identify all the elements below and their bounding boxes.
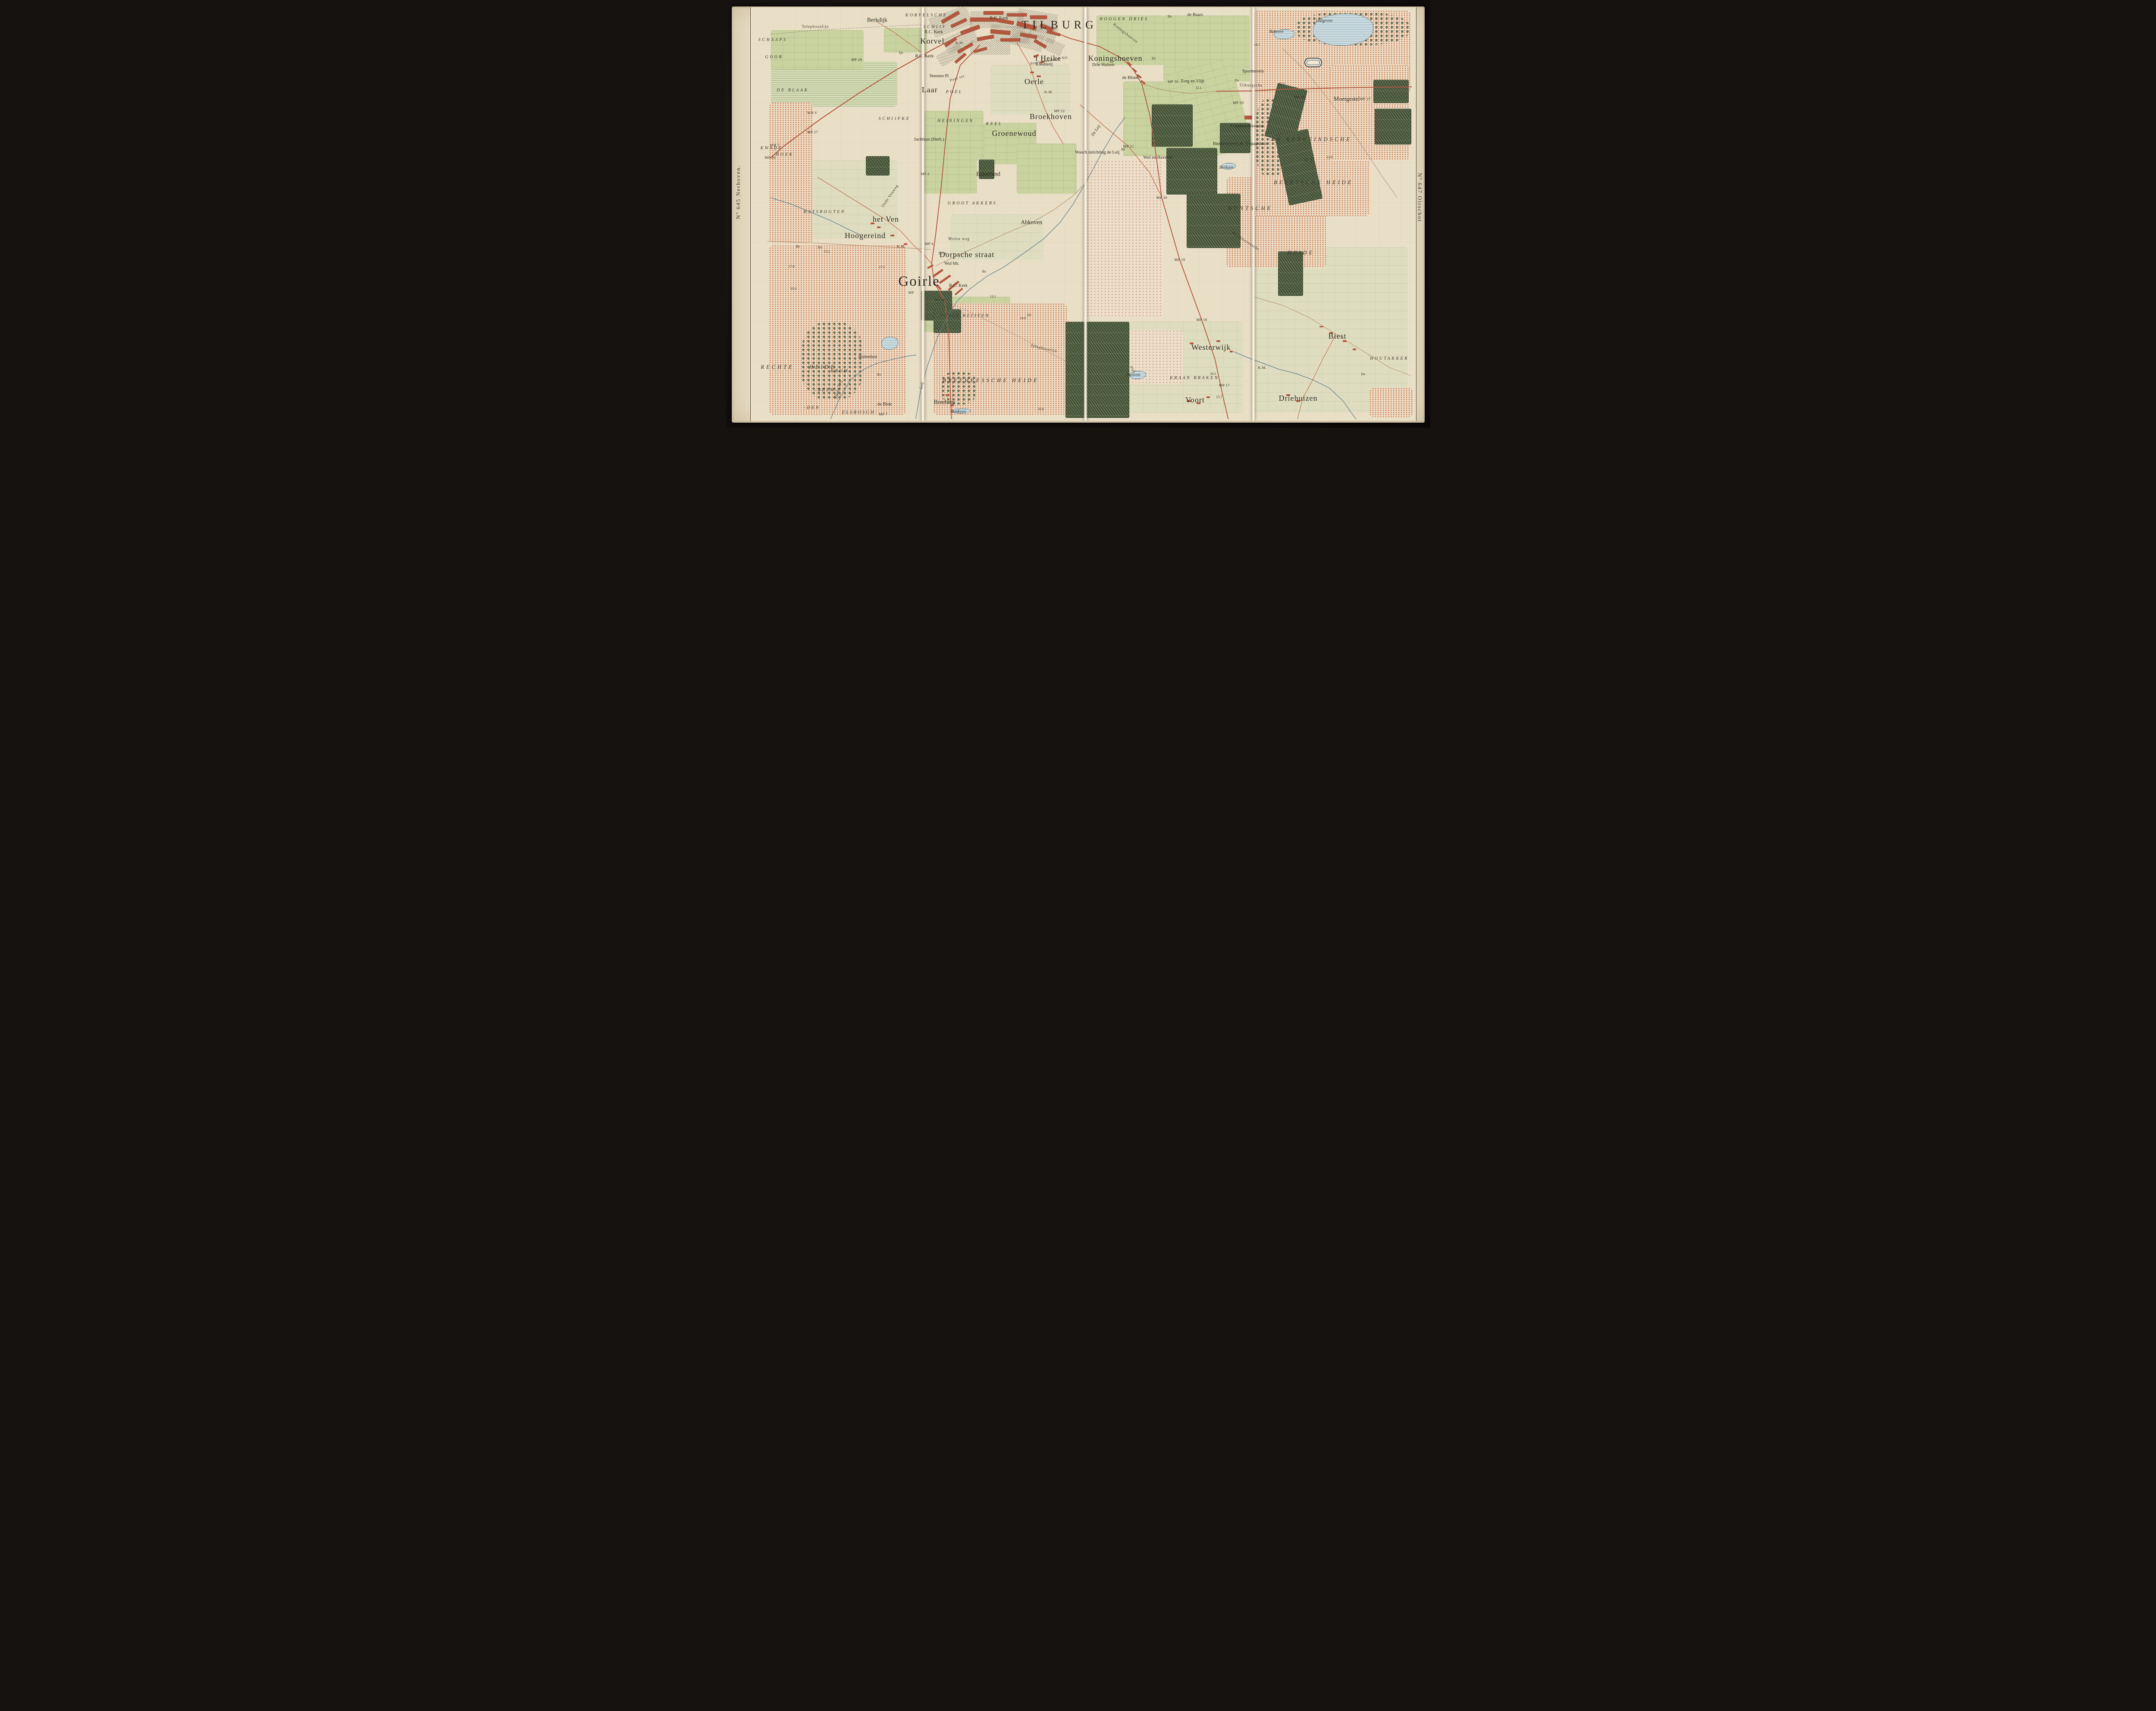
- map-label: Bankven: [951, 410, 965, 414]
- map-label: de Baars: [1187, 13, 1203, 18]
- map-label: MP 22: [1054, 109, 1065, 113]
- map-content: TILBURGGoirleKorvel't HeikeKoningshoeven…: [750, 7, 1416, 421]
- map-label: Sportterrein: [1242, 69, 1264, 74]
- map-label: Hoogereind: [845, 232, 886, 239]
- map-label: 17.3: [879, 266, 885, 269]
- map-label: K.M.: [956, 41, 964, 45]
- map-label: KEEL: [986, 122, 1003, 126]
- map-label: Wasch inrichting de Leij: [1075, 150, 1119, 155]
- map-label: Br: [1121, 148, 1125, 151]
- map-label: 13.1: [990, 295, 996, 298]
- water-line: [771, 198, 861, 235]
- map-label: Leij: [919, 382, 924, 389]
- map-label: KATSBOGTEN: [804, 210, 846, 214]
- map-label: DE BLAAK: [777, 88, 808, 93]
- map-label: Buitenlust: [859, 355, 877, 359]
- map-label: het Ven: [873, 215, 899, 223]
- map-label: MP 17: [1219, 383, 1230, 387]
- map-label: Trappistenklooster: [1230, 124, 1264, 129]
- map-label: Dr: [1168, 15, 1172, 19]
- map-label: Goirle: [898, 274, 940, 289]
- map-label: 12.1: [1195, 86, 1201, 90]
- map-sheet-paper: Nº 645 Nerhoven. Nº 647 Oirschot TILBURG…: [732, 6, 1425, 423]
- map-label: MP 26: [765, 156, 775, 160]
- map-label: MP 29: [1233, 101, 1244, 105]
- map-label: Br: [982, 270, 987, 273]
- map-label: SCHIJFKE: [879, 117, 911, 121]
- map-label: HEIDE: [1012, 378, 1039, 383]
- map-label: Galgeven: [1316, 19, 1332, 23]
- map-label: 12.3: [1279, 82, 1285, 86]
- water-line: [830, 355, 916, 419]
- left-margin-title: Nº 645 Nerhoven.: [735, 165, 742, 219]
- map-label: Steenen Pl: [929, 74, 949, 79]
- map-label: Dr: [818, 245, 822, 249]
- map-label: Abkoven: [1021, 219, 1042, 225]
- map-label: RECHTE: [761, 364, 794, 370]
- map-label: Biest: [1329, 332, 1347, 340]
- fold-crease: [921, 7, 924, 421]
- map-label: Molen weg: [948, 237, 970, 241]
- map-label: R.C. Kerk: [915, 54, 934, 59]
- map-label: de Bloter: [1122, 76, 1139, 81]
- map-label: Dr 4: [939, 251, 946, 255]
- map-label: WH 7: [770, 143, 780, 147]
- right-margin-title: Nº 647 Oirschot: [1416, 173, 1423, 222]
- map-label: 19.4: [790, 287, 796, 291]
- map-label: BREEHEESSCHE: [943, 378, 1008, 383]
- map-label: VOSSE REIJTEN: [940, 314, 990, 318]
- map-label: MP 3: [921, 172, 929, 176]
- fold-crease: [1084, 7, 1087, 421]
- map-label: K.M.: [897, 245, 906, 248]
- map-label: SCHIJF: [924, 25, 947, 29]
- map-label: Groenewoud: [992, 129, 1037, 137]
- map-label: Breehees: [934, 399, 955, 405]
- map-label: Dr: [1361, 372, 1366, 376]
- map-label: Moergestel: [1334, 96, 1360, 102]
- map-label: GROOT AKKERS: [948, 201, 997, 206]
- map-label: Dorpsche straat: [940, 251, 994, 258]
- map-label: TILBURG: [1022, 19, 1097, 31]
- map-label: HOUTAKKER: [1370, 357, 1409, 361]
- map-label: WH 6: [807, 111, 817, 115]
- map-label: R.C. Kerk: [990, 16, 1008, 21]
- map-label: Drie Huizen: [1092, 63, 1115, 68]
- map-label: HOOGEN DRIES: [1100, 17, 1149, 22]
- map-label: MP 28: [1294, 95, 1305, 99]
- map-label: Dr: [899, 51, 903, 55]
- map-label: Voort: [1185, 396, 1205, 404]
- map-label: 15.7: [1216, 396, 1222, 399]
- map-label: MP 18: [1196, 318, 1207, 322]
- road-line: [1283, 49, 1397, 198]
- map-label: KROM-: [830, 369, 852, 374]
- map-label: SCHAAPS: [758, 38, 787, 42]
- map-label: Driehuizen: [1279, 394, 1318, 402]
- map-label: Laar: [922, 86, 938, 94]
- map-label: MP 20: [1156, 196, 1167, 200]
- map-label: Dr: [1235, 78, 1239, 82]
- map-label: Korvel: [920, 37, 944, 45]
- map-label: GOOR: [765, 55, 783, 60]
- map-label: HOEK: [776, 153, 793, 157]
- map-label: Jachtlust (Herb.): [914, 138, 944, 142]
- map-label: de Blok: [877, 402, 892, 407]
- map-label: Bakertand: [976, 171, 1000, 177]
- map-label: Dr: [1028, 313, 1032, 317]
- map-label: Bierbrouwerij de Schaapskooi: [1213, 142, 1268, 147]
- historical-topographic-map: Nº 645 Nerhoven. Nº 647 Oirschot TILBURG…: [726, 0, 1430, 428]
- map-label: BEERTSCHE HEIDE: [1274, 179, 1353, 185]
- map-label: OF: [1304, 157, 1316, 163]
- map-label: MP 7: [879, 412, 887, 416]
- map-label: K.M.: [1258, 365, 1266, 369]
- road-line: [768, 241, 931, 249]
- map-label: 14.1: [1254, 43, 1260, 47]
- map-label: ELSBOSCH: [842, 411, 875, 415]
- map-label: Zorg en Vlijt: [1181, 79, 1204, 84]
- map-label: MP 19: [1175, 258, 1185, 262]
- map-label: MP 27: [1360, 97, 1371, 101]
- map-label: MP 28: [851, 57, 862, 61]
- map-label: Wol Mr.: [944, 261, 959, 266]
- map-label: Wol en Haveren: [1143, 156, 1172, 160]
- map-label: POEL: [946, 90, 963, 94]
- map-label: Koningshoeven: [1088, 54, 1142, 62]
- map-label: Telephoonlijn: [802, 25, 829, 28]
- map-label: MP: [908, 291, 914, 295]
- map-label: Westerwijk: [1191, 343, 1231, 351]
- map-label: Baksven: [1269, 30, 1283, 34]
- map-label: BUNTSCHE: [1228, 206, 1272, 211]
- map-label: DE KERKEINDSCHE: [1271, 137, 1352, 142]
- map-label: Tilburgsche: [1239, 84, 1263, 88]
- road-line: [1216, 87, 1412, 91]
- map-label: Dr: [1152, 57, 1156, 60]
- water-line: [916, 117, 1125, 419]
- map-label: 20.8: [1038, 408, 1044, 411]
- map-label: Broekhoven: [1030, 113, 1072, 120]
- map-label: HEIDE: [1288, 250, 1315, 256]
- map-label: 17.8: [788, 265, 794, 268]
- map-label: Wt M.: [935, 298, 946, 302]
- map-label: R.C. Kerk: [949, 283, 968, 288]
- map-label: Berkven: [1219, 166, 1234, 170]
- road-line: [947, 301, 1100, 378]
- map-label: KORVELSCHE: [906, 13, 948, 18]
- map-label: MP 4: [924, 242, 933, 245]
- map-label: HEININGEN: [937, 119, 974, 123]
- road-line: [1297, 334, 1336, 419]
- map-label: MP 27: [807, 130, 818, 134]
- map-label: MP 30: [1168, 79, 1178, 83]
- map-label: 12.9: [1326, 156, 1332, 159]
- road-line: [932, 44, 981, 419]
- map-label: 15.2: [824, 250, 830, 254]
- map-label: Oerle: [1025, 78, 1044, 85]
- map-label: Br: [877, 373, 881, 377]
- map-label: -DEN: [804, 406, 820, 410]
- map-label: K.M.: [1044, 90, 1053, 94]
- road-line: [771, 25, 924, 34]
- road-line: [1142, 84, 1216, 93]
- map-label: Br: [796, 245, 800, 248]
- map-label: Berkdijk: [867, 17, 887, 23]
- map-label: R.C. Kerk: [924, 30, 943, 35]
- map-label: KRAAN BRAKEN: [1170, 376, 1219, 380]
- map-label: 14.6: [1020, 317, 1026, 320]
- map-label: 16.2: [1210, 372, 1216, 376]
